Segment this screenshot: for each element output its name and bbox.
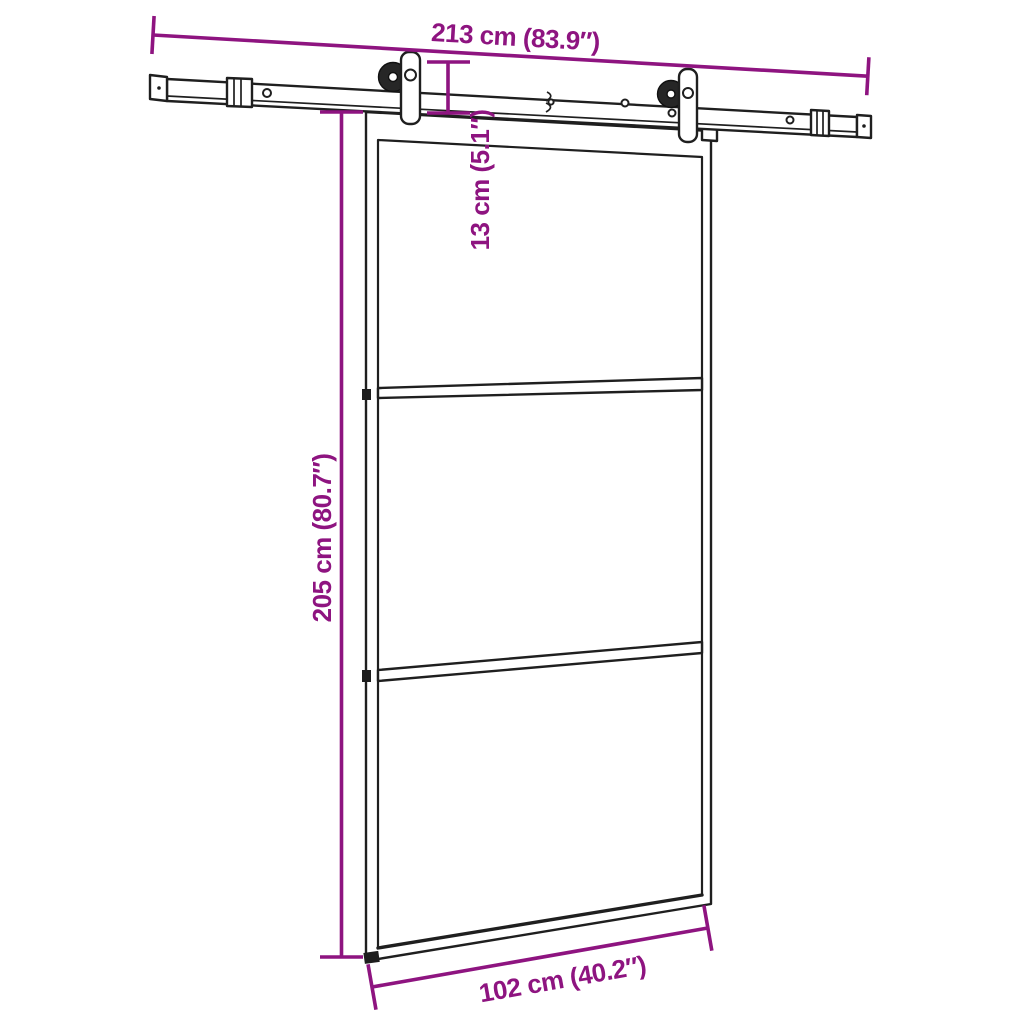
roller-hub-right [667, 90, 675, 98]
dimension-door-height: 205 cm (80.7″) [307, 112, 363, 957]
rail-cap-screw-right [862, 124, 866, 128]
frame-joint-bottom [363, 951, 379, 964]
rail-hole-2 [622, 100, 629, 107]
roller-strap-right [679, 69, 697, 142]
strap-bolt-hole-right [683, 88, 693, 98]
dimension-rail-width: 213 cm (83.9″) [152, 1, 870, 95]
roller-strap-left [401, 52, 420, 124]
rail-hole-1 [263, 89, 271, 97]
rail-hole-3 [669, 110, 676, 117]
frame-joint-2 [362, 670, 371, 682]
rail-coupling-right [811, 110, 829, 136]
dimension-label-door-height: 205 cm (80.7″) [307, 454, 337, 623]
dimension-label-door-width: 102 cm (40.2″) [477, 950, 648, 1009]
rail-cap-screw-left [157, 86, 161, 90]
frame-joint-1 [362, 389, 371, 400]
rail-coupling-left [227, 78, 252, 107]
rail-hole-4 [787, 117, 794, 124]
door-outer-frame [366, 112, 711, 961]
sliding-door-diagram: 213 cm (83.9″) 13 cm (5.1″) 205 cm (80.7… [0, 0, 1024, 1024]
strap-bolt-hole-left [405, 70, 416, 81]
door [362, 112, 717, 964]
roller-hub-left [389, 73, 398, 82]
dimension-label-drop: 13 cm (5.1″) [465, 110, 495, 251]
diagram-canvas: 213 cm (83.9″) 13 cm (5.1″) 205 cm (80.7… [0, 0, 1024, 1024]
